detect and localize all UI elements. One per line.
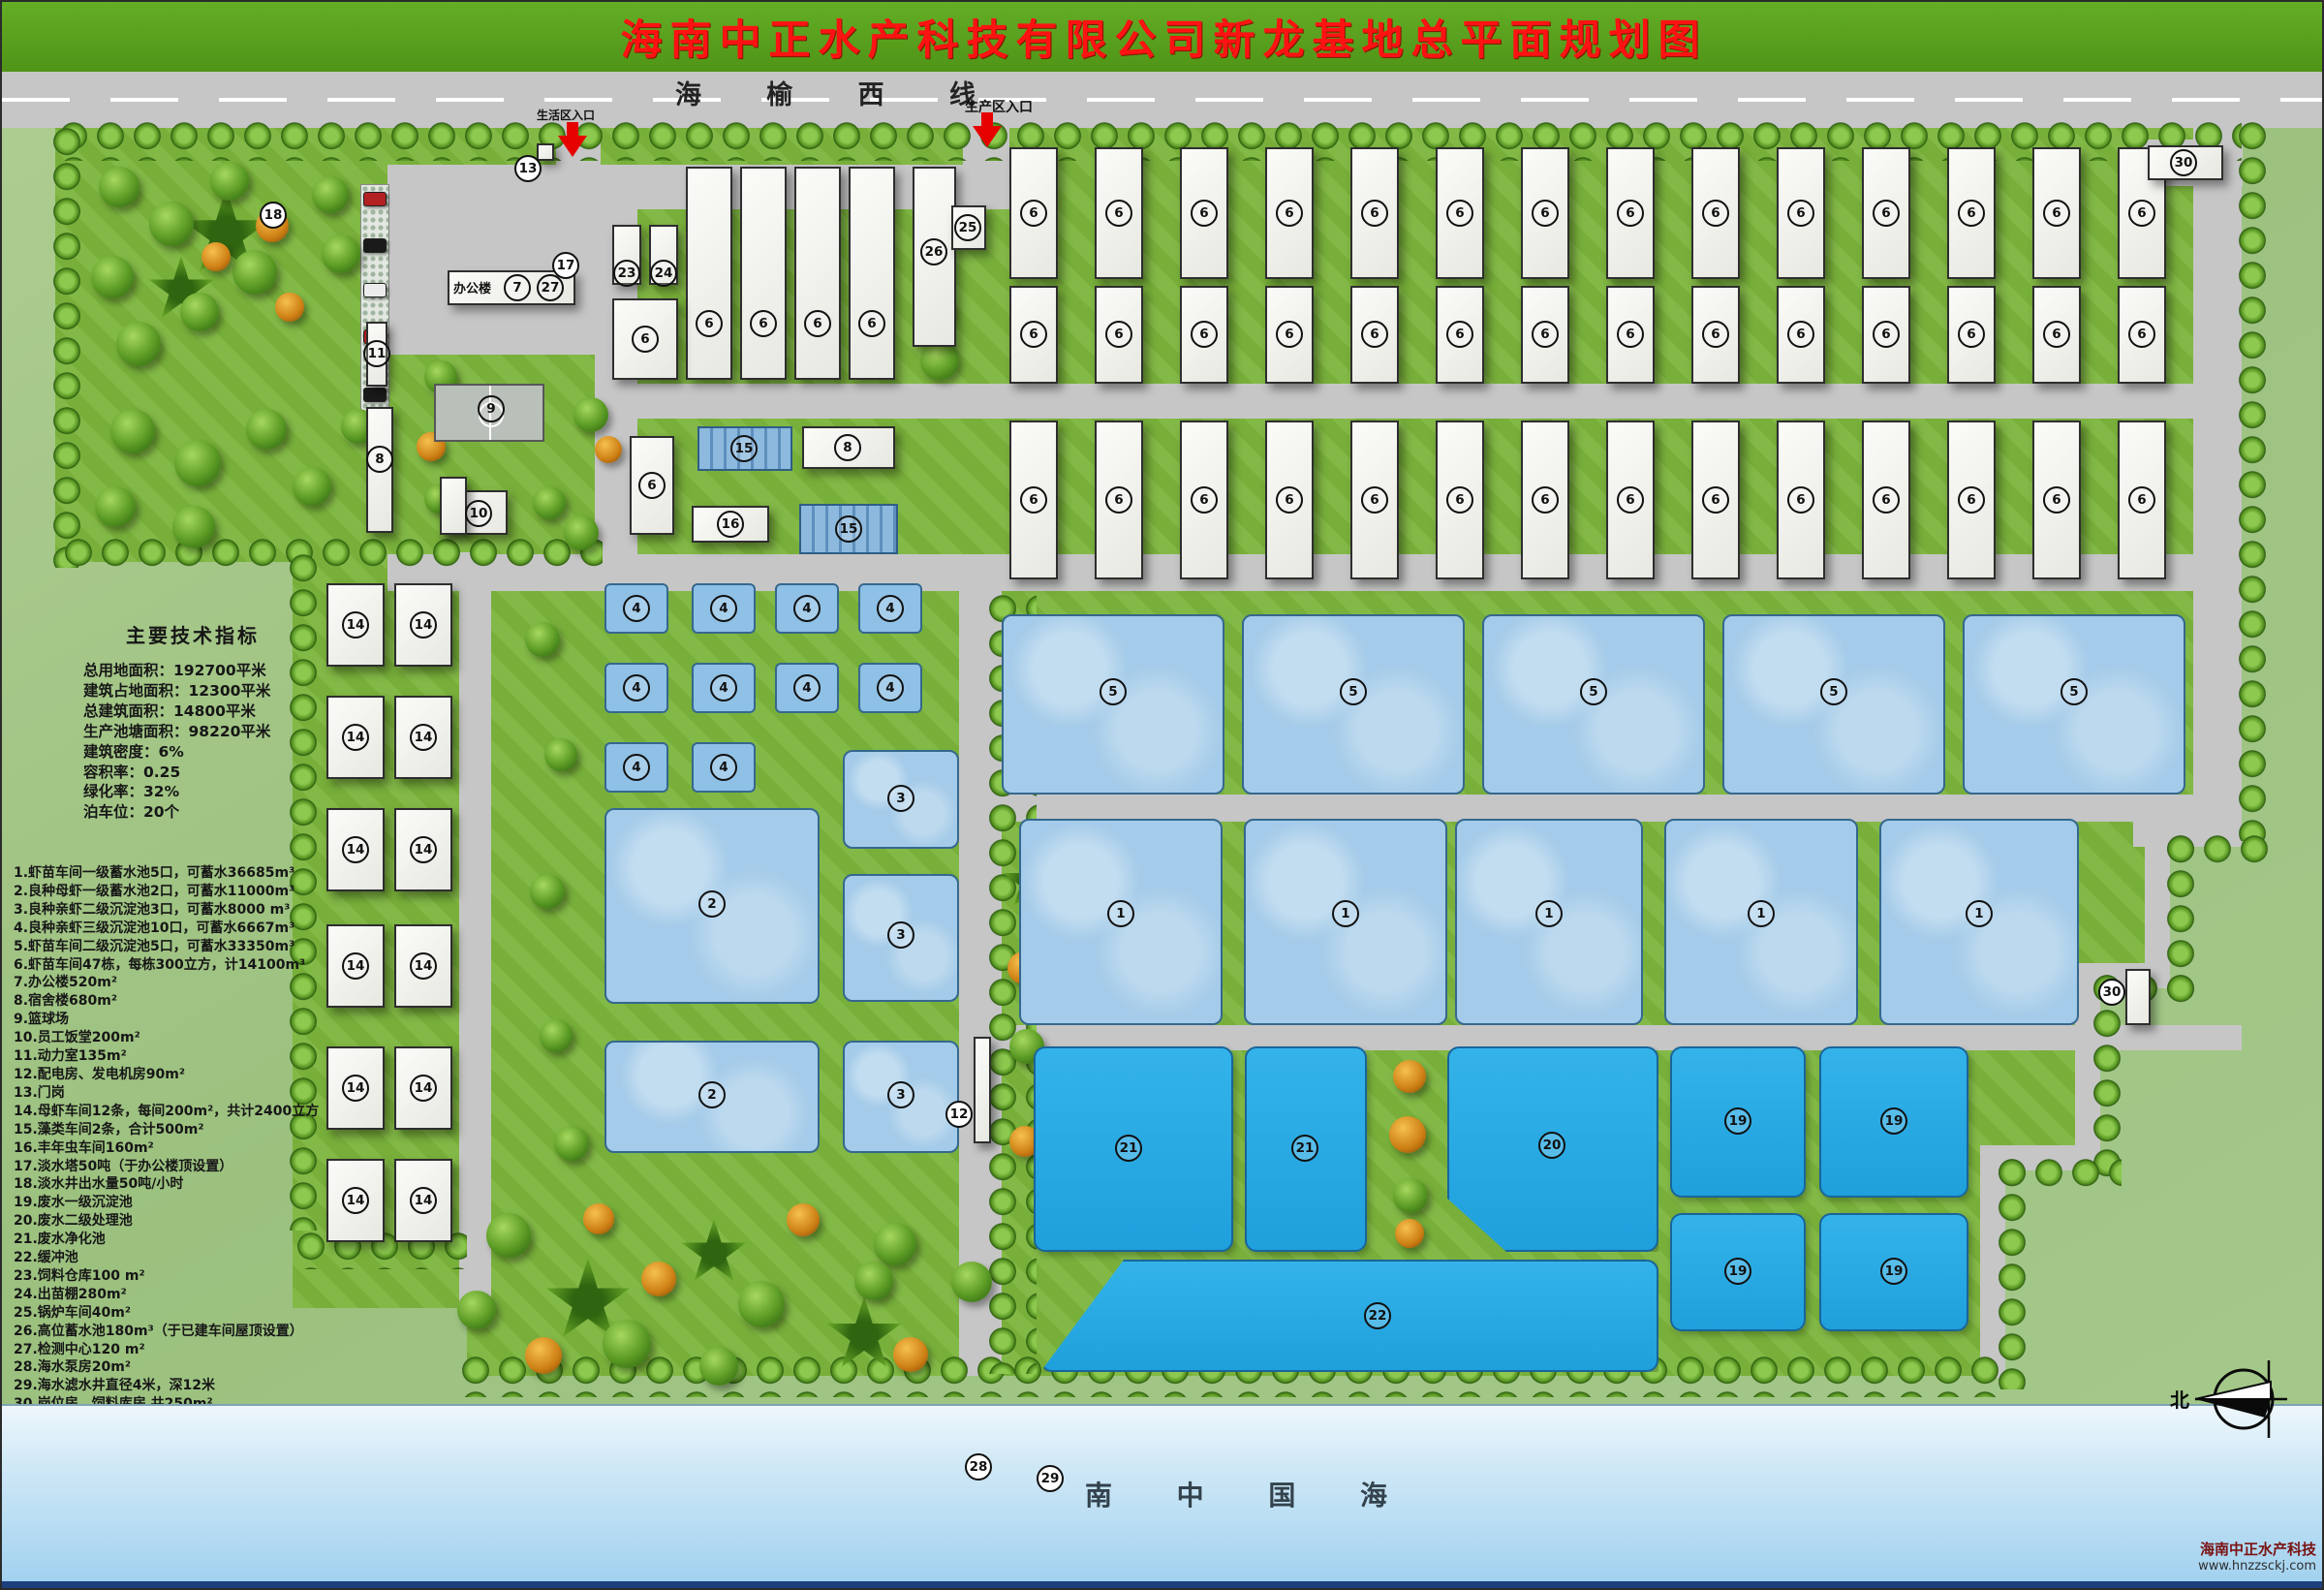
tree — [603, 1320, 651, 1368]
legend-item-line: 14.母虾车间12条，每间200m²，共计2400立方 — [14, 1103, 343, 1121]
marker-26: 26 — [920, 238, 947, 265]
workshop — [740, 167, 787, 380]
tree — [232, 250, 277, 295]
page-title: 海南中正水产科技有限公司新龙基地总平面规划图 — [621, 7, 1708, 67]
legend-item-line: 15.藻类车间2条，合计500m² — [14, 1121, 343, 1139]
legend-item-line: 26.高位蓄水池180m³（于已建车间屋顶设置） — [14, 1323, 343, 1341]
car — [363, 283, 387, 297]
tree — [738, 1281, 785, 1327]
orange-tree — [201, 242, 231, 271]
marker-14: 14 — [342, 1075, 369, 1102]
orange-tree — [525, 1337, 562, 1374]
title-banner: 海南中正水产科技有限公司新龙基地总平面规划图 — [2, 2, 2324, 72]
legend-item-line: 25.锅炉车间40m² — [14, 1304, 343, 1323]
buffer-pond — [1040, 1260, 1658, 1372]
highway-name-char: 西 — [858, 74, 884, 111]
marker-12: 12 — [945, 1101, 973, 1128]
tree — [854, 1262, 893, 1300]
legend-item-line: 8.宿舍楼680m² — [14, 992, 343, 1011]
legend-item-line: 2.良种母虾一级蓄水池2口，可蓄水11000m³ — [14, 883, 343, 901]
living-entrance-arrow — [558, 122, 587, 157]
marker-6: 6 — [1617, 321, 1644, 348]
west-vertical-road — [459, 552, 491, 1308]
legend-item-line: 24.出苗棚280m² — [14, 1286, 343, 1304]
marker-6: 6 — [858, 310, 885, 337]
orange-tree — [1395, 1219, 1424, 1248]
orange-tree — [1389, 1116, 1426, 1153]
tree — [920, 341, 959, 380]
marker-29: 29 — [1037, 1465, 1064, 1492]
marker-6: 6 — [1617, 486, 1644, 514]
marker-6: 6 — [1702, 486, 1729, 514]
marker-1: 1 — [1535, 900, 1563, 927]
legend-stat-line: 泊车位：20个 — [83, 802, 374, 823]
marker-4: 4 — [710, 595, 737, 622]
compass-north-label: 北 — [2170, 1388, 2189, 1412]
marker-6: 6 — [2128, 200, 2155, 227]
sea-name-char: 中 — [1177, 1475, 1204, 1513]
marker-19: 19 — [1724, 1107, 1751, 1135]
marker-6: 6 — [1361, 200, 1388, 227]
marker-6: 6 — [1702, 321, 1729, 348]
car — [363, 192, 387, 206]
legend-stat-line: 建筑密度：6% — [83, 742, 374, 763]
tree — [180, 293, 219, 331]
marker-6: 6 — [1873, 486, 1900, 514]
marker-6: 6 — [804, 310, 831, 337]
marker-6: 6 — [1276, 486, 1303, 514]
marker-6: 6 — [1958, 321, 1985, 348]
legend-item-line: 27.检测中心120 m² — [14, 1341, 343, 1359]
marker-6: 6 — [2128, 486, 2155, 514]
legend-stat-line: 容积率：0.25 — [83, 763, 374, 783]
marker-6: 6 — [1958, 486, 1985, 514]
tree — [91, 256, 134, 298]
boundary-trees-top — [55, 120, 2242, 161]
arrow-stem — [567, 122, 578, 136]
marker-16: 16 — [717, 511, 744, 538]
compass: 北 — [2170, 1356, 2290, 1440]
marker-6: 6 — [638, 472, 666, 499]
legend-stat-line: 生产池塘面积：98220平米 — [83, 722, 374, 742]
legend-item-line: 11.动力室135m² — [14, 1047, 343, 1066]
marker-14: 14 — [410, 1187, 437, 1214]
marker-6: 6 — [1873, 200, 1900, 227]
marker-28: 28 — [965, 1453, 992, 1481]
mid-row-road — [637, 384, 2242, 419]
marker-14: 14 — [410, 611, 437, 639]
footer-website: www.hnzzsckj.com — [2198, 1559, 2316, 1574]
marker-6: 6 — [1191, 200, 1218, 227]
legend-stat-line: 建筑占地面积：12300平米 — [83, 681, 374, 701]
marker-4: 4 — [877, 674, 904, 701]
legend-item-line: 1.虾苗车间一级蓄水池5口，可蓄水36685m³ — [14, 864, 343, 883]
marker-4: 4 — [877, 595, 904, 622]
marker-5: 5 — [1580, 678, 1607, 705]
legend-item-line: 28.海水泵房20m² — [14, 1358, 343, 1377]
orange-tree — [583, 1203, 614, 1234]
legend-item-line: 9.篮球场 — [14, 1011, 343, 1029]
marker-6: 6 — [696, 310, 723, 337]
legend-item-line: 3.良种亲虾二级沉淀池3口，可蓄水8000 m³ — [14, 901, 343, 920]
marker-5: 5 — [1340, 678, 1367, 705]
marker-4: 4 — [710, 674, 737, 701]
legend-stat-line: 绿化率：32% — [83, 782, 374, 802]
marker-6: 6 — [1617, 200, 1644, 227]
legend-item-line: 18.淡水井出水量50吨/小时 — [14, 1175, 343, 1194]
legend-item-line: 16.丰年虫车间160m² — [14, 1139, 343, 1158]
living-entrance-label: 生活区入口 — [537, 107, 595, 123]
marker-2: 2 — [698, 890, 726, 918]
marker-6: 6 — [1105, 486, 1132, 514]
marker-6: 6 — [1020, 486, 1047, 514]
orange-tree — [275, 293, 304, 322]
marker-8: 8 — [366, 446, 393, 473]
orange-tree — [595, 436, 622, 463]
marker-6: 6 — [1191, 321, 1218, 348]
marker-30: 30 — [2098, 979, 2125, 1006]
site-plan-canvas: 海南中正水产科技有限公司新龙基地总平面规划图 13办公楼727171189101… — [0, 0, 2324, 1590]
orange-tree — [641, 1262, 676, 1296]
tree — [951, 1262, 992, 1302]
marker-6: 6 — [1532, 486, 1559, 514]
legend-item-line: 10.员工饭堂200m² — [14, 1029, 343, 1047]
highway-name: 海榆西线 — [675, 74, 976, 111]
tree — [172, 506, 215, 548]
marker-6: 6 — [2043, 200, 2070, 227]
tree — [149, 202, 194, 246]
legend-item-line: 22.缓冲池 — [14, 1249, 343, 1267]
footer-watermark: 海南中正水产科技 www.hnzzsckj.com — [2198, 1541, 2316, 1574]
marker-6: 6 — [1958, 200, 1985, 227]
tree — [99, 167, 139, 207]
marker-6: 6 — [1787, 486, 1814, 514]
marker-6: 6 — [1532, 200, 1559, 227]
marker-11: 11 — [363, 340, 390, 367]
marker-4: 4 — [710, 754, 737, 781]
footer-navy-strip — [2, 1581, 2324, 1590]
marker-6: 6 — [1702, 200, 1729, 227]
orange-tree — [787, 1203, 820, 1236]
canteen — [440, 477, 467, 535]
legend-items: 1.虾苗车间一级蓄水池5口，可蓄水36685m³2.良种母虾一级蓄水池2口，可蓄… — [14, 864, 343, 1414]
marker-4: 4 — [623, 595, 650, 622]
tree — [174, 440, 221, 486]
map-features: 13办公楼72717118910182324666626256615816156… — [2, 72, 2322, 1588]
marker-6: 6 — [1361, 486, 1388, 514]
marker-2: 2 — [698, 1081, 726, 1108]
tree — [573, 397, 608, 432]
legend-stat-line: 总用地面积：192700平米 — [83, 661, 374, 681]
tree — [554, 1126, 589, 1161]
marker-19: 19 — [1880, 1107, 1907, 1135]
legend-item-line: 19.废水一级沉淀池 — [14, 1194, 343, 1212]
marker-3: 3 — [887, 785, 914, 812]
marker-14: 14 — [342, 1187, 369, 1214]
legend-item-line: 12.配电房、发电机房90m² — [14, 1066, 343, 1084]
workshop — [794, 167, 841, 380]
marker-24: 24 — [650, 260, 677, 287]
marker-25: 25 — [954, 214, 981, 241]
orange-tree — [893, 1337, 928, 1372]
marker-5: 5 — [2061, 678, 2088, 705]
tree — [110, 409, 155, 453]
marker-19: 19 — [1724, 1258, 1751, 1285]
legend-item-line: 23.饲料仓库100 m² — [14, 1267, 343, 1286]
marker-15: 15 — [730, 435, 758, 462]
highway-name-char: 榆 — [766, 74, 792, 111]
marker-6: 6 — [1873, 321, 1900, 348]
generator-room — [974, 1037, 991, 1143]
car — [363, 388, 387, 402]
marker-6: 6 — [1446, 486, 1473, 514]
marker-8: 8 — [834, 434, 861, 461]
tree — [95, 486, 136, 527]
marker-4: 4 — [793, 674, 821, 701]
sea-name-char: 国 — [1268, 1475, 1295, 1513]
arrow-stem — [981, 112, 993, 126]
tree — [116, 322, 161, 366]
highway-name-char: 海 — [675, 74, 701, 111]
marker-6: 6 — [1020, 321, 1047, 348]
marker-14: 14 — [342, 952, 369, 980]
sea-name-char: 南 — [1085, 1475, 1112, 1513]
marker-4: 4 — [793, 595, 821, 622]
marker-6: 6 — [1787, 321, 1814, 348]
tree — [293, 467, 331, 506]
workshop — [686, 167, 732, 380]
production-entrance-arrow — [973, 112, 1002, 147]
marker-6: 6 — [1446, 321, 1473, 348]
marker-6: 6 — [1105, 200, 1132, 227]
arrow-head — [558, 136, 587, 157]
marker-13: 13 — [514, 155, 542, 182]
marker-6: 6 — [1105, 321, 1132, 348]
boundary-trees-right — [2234, 120, 2273, 841]
marker-21: 21 — [1115, 1135, 1142, 1162]
tree — [312, 176, 349, 213]
tree — [699, 1347, 738, 1386]
marker-1: 1 — [1966, 900, 1993, 927]
marker-15: 15 — [835, 515, 862, 543]
sea-name: 南中国海 — [1085, 1475, 1387, 1513]
tree — [533, 486, 566, 519]
marker-30: 30 — [2170, 149, 2197, 176]
marker-6: 6 — [750, 310, 777, 337]
marker-6: 6 — [1361, 321, 1388, 348]
tree — [544, 738, 577, 771]
marker-17: 17 — [552, 252, 579, 279]
arrow-head — [973, 126, 1002, 147]
tree — [525, 622, 560, 657]
marker-3: 3 — [887, 1081, 914, 1108]
h3-road — [1002, 795, 2242, 822]
marker-6: 6 — [2043, 486, 2070, 514]
legend-item-line: 13.门岗 — [14, 1084, 343, 1103]
post-house — [2125, 969, 2151, 1025]
marker-5: 5 — [1100, 678, 1127, 705]
marker-20: 20 — [1538, 1132, 1565, 1159]
tree — [540, 1019, 573, 1052]
marker-6: 6 — [1787, 200, 1814, 227]
marker-6: 6 — [1532, 321, 1559, 348]
marker-19: 19 — [1880, 1258, 1907, 1285]
park-trees-bottom — [60, 537, 603, 574]
marker-14: 14 — [410, 836, 437, 863]
tree — [874, 1223, 916, 1265]
legend-item-line: 17.淡水塔50吨（于办公楼顶设置） — [14, 1158, 343, 1176]
office-label: 办公楼 — [453, 277, 508, 296]
legend-item-line: 6.虾苗车间47栋，每栋300立方，计14100m³ — [14, 956, 343, 975]
marker-21: 21 — [1291, 1135, 1318, 1162]
marker-14: 14 — [410, 952, 437, 980]
legend-stats: 总用地面积：192700平米建筑占地面积：12300平米总建筑面积：14800平… — [83, 661, 374, 823]
tree — [322, 234, 360, 273]
legend-heading: 主要技术指标 — [87, 620, 298, 648]
marker-27: 27 — [537, 274, 564, 301]
marker-6: 6 — [2128, 321, 2155, 348]
marker-23: 23 — [613, 260, 640, 287]
marker-6: 6 — [1191, 486, 1218, 514]
sea-name-char: 海 — [1360, 1475, 1387, 1513]
legend-stat-line: 总建筑面积：14800平米 — [83, 701, 374, 722]
marker-22: 22 — [1364, 1302, 1391, 1329]
marker-4: 4 — [623, 754, 650, 781]
marker-14: 14 — [342, 611, 369, 639]
marker-6: 6 — [632, 326, 659, 353]
legend-item-line: 21.废水净化池 — [14, 1231, 343, 1249]
highway-centerline — [2, 98, 2324, 102]
marker-6: 6 — [1276, 321, 1303, 348]
marker-1: 1 — [1332, 900, 1359, 927]
tree — [210, 162, 249, 201]
tree — [246, 409, 287, 450]
legend-item-line: 5.虾苗车间二级沉淀池5口，可蓄水33350m³ — [14, 938, 343, 956]
marker-1: 1 — [1107, 900, 1134, 927]
marker-9: 9 — [478, 395, 505, 422]
legend-item-line: 7.办公楼520m² — [14, 974, 343, 992]
marker-10: 10 — [465, 500, 492, 527]
marker-6: 6 — [1446, 200, 1473, 227]
car — [363, 238, 387, 253]
boundary-trees-left — [48, 126, 89, 568]
marker-14: 14 — [342, 724, 369, 751]
tree — [457, 1291, 496, 1329]
marker-6: 6 — [1020, 200, 1047, 227]
tree — [564, 515, 599, 550]
marker-3: 3 — [887, 921, 914, 949]
legend-item-line: 4.良种亲虾三级沉淀池10口，可蓄水6667m³ — [14, 920, 343, 938]
legend-item-line: 29.海水滤水井直径4米，深12米 — [14, 1377, 343, 1395]
footer-company: 海南中正水产科技 — [2198, 1541, 2316, 1559]
tree — [486, 1213, 531, 1258]
tree — [1393, 1178, 1428, 1213]
marker-14: 14 — [410, 724, 437, 751]
marker-6: 6 — [1276, 200, 1303, 227]
orange-tree — [1393, 1060, 1426, 1093]
legend-item-line: 20.废水二级处理池 — [14, 1212, 343, 1231]
marker-14: 14 — [410, 1075, 437, 1102]
marker-4: 4 — [623, 674, 650, 701]
marker-5: 5 — [1820, 678, 1847, 705]
marker-1: 1 — [1748, 900, 1775, 927]
marker-7: 7 — [504, 274, 531, 301]
tree — [530, 874, 565, 909]
workshop — [849, 167, 895, 380]
gatehouse — [537, 143, 554, 161]
marker-6: 6 — [2043, 321, 2070, 348]
marker-14: 14 — [342, 836, 369, 863]
marker-18: 18 — [260, 202, 287, 229]
